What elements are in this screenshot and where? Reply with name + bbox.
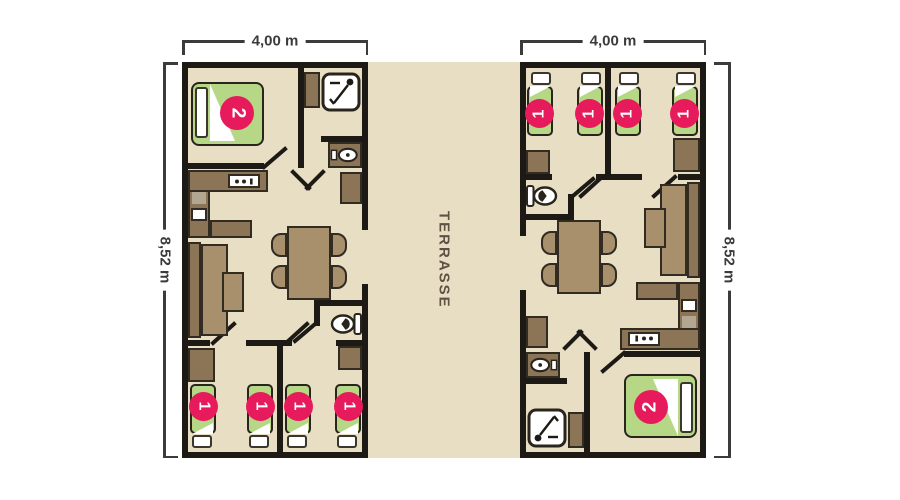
counter-detail	[192, 192, 206, 204]
dimension-tick	[182, 40, 185, 55]
pillow	[192, 435, 212, 448]
dimension-tick	[714, 456, 729, 459]
dining-table	[557, 220, 601, 294]
floor-plan-unit-left: 2	[182, 62, 368, 458]
bed-capacity-badge: 1	[189, 392, 218, 421]
badge-number: 1	[531, 110, 549, 119]
floor-plan-unit-right: 2	[520, 62, 706, 458]
terrace-door-opening	[362, 230, 368, 284]
washbasin-icon	[526, 352, 560, 378]
width-dimension-label: 4,00 m	[583, 33, 644, 50]
cabinet	[338, 346, 362, 370]
chair	[271, 233, 287, 257]
coffee-table	[644, 208, 666, 248]
pillow	[287, 435, 307, 448]
badge-number: 1	[676, 110, 694, 119]
badge-number: 1	[251, 402, 269, 411]
shower-icon	[321, 72, 361, 112]
bed-capacity-badge: 2	[220, 96, 254, 130]
chair	[601, 263, 617, 287]
pillow	[680, 382, 693, 433]
stove-icon	[228, 174, 260, 188]
bed-capacity-badge: 1	[284, 392, 313, 421]
washbasin-icon	[328, 142, 362, 168]
width-dimension-label: 4,00 m	[245, 33, 306, 50]
sofa-back	[188, 242, 201, 338]
badge-number: 1	[339, 402, 357, 411]
terrace: TERRASSE	[368, 62, 520, 458]
badge-number: 1	[619, 110, 637, 119]
pillow	[249, 435, 269, 448]
height-dimension-label: 8,52 m	[157, 230, 174, 291]
width-dimension-left: 4,00 m	[182, 26, 368, 58]
cabinet	[526, 150, 550, 174]
dimension-tick	[163, 62, 178, 65]
height-dimension-label: 8,52 m	[721, 230, 738, 291]
pillow	[195, 87, 208, 138]
wardrobe	[188, 348, 215, 382]
height-dimension-right: 8,52 m	[714, 62, 750, 458]
toilet-icon	[330, 310, 362, 338]
dimension-tick	[366, 40, 369, 55]
kitchen-sink-icon	[191, 208, 207, 221]
stove-icon	[628, 332, 660, 346]
pillow	[619, 72, 639, 85]
kitchen-sink-icon	[681, 299, 697, 312]
dining-table	[287, 226, 331, 300]
floor-plan: TERRASSE 4,00 m 4,00 m 8,52 m 8,52 m	[0, 0, 900, 500]
badge-number: 1	[289, 402, 307, 411]
cabinet	[340, 172, 362, 204]
pillow	[581, 72, 601, 85]
sofa-back	[687, 182, 700, 278]
pillow	[337, 435, 357, 448]
badge-number: 2	[640, 402, 662, 413]
badge-number: 1	[194, 402, 212, 411]
dimension-tick	[704, 40, 707, 55]
pillow	[531, 72, 551, 85]
kitchen-counter	[636, 282, 678, 300]
bed-capacity-badge: 2	[634, 390, 668, 424]
coffee-table	[222, 272, 244, 312]
chair	[541, 263, 557, 287]
cabinet	[526, 316, 548, 348]
bed-capacity-badge: 1	[334, 392, 363, 421]
toilet-icon	[526, 182, 558, 210]
kitchen-counter	[210, 220, 252, 238]
chair	[601, 231, 617, 255]
chair	[331, 265, 347, 289]
badge-number: 1	[581, 110, 599, 119]
wardrobe	[304, 72, 320, 108]
pillow	[676, 72, 696, 85]
terrace-label: TERRASSE	[436, 211, 453, 309]
width-dimension-right: 4,00 m	[520, 26, 706, 58]
chair	[541, 231, 557, 255]
dimension-tick	[714, 62, 729, 65]
wardrobe	[673, 138, 700, 172]
dimension-tick	[163, 456, 178, 459]
counter-detail	[682, 316, 696, 328]
bed-capacity-badge: 1	[246, 392, 275, 421]
shower-icon	[527, 408, 567, 448]
chair	[271, 265, 287, 289]
wardrobe	[568, 412, 584, 448]
chair	[331, 233, 347, 257]
badge-number: 2	[226, 108, 248, 119]
height-dimension-left: 8,52 m	[144, 62, 180, 458]
dimension-tick	[520, 40, 523, 55]
